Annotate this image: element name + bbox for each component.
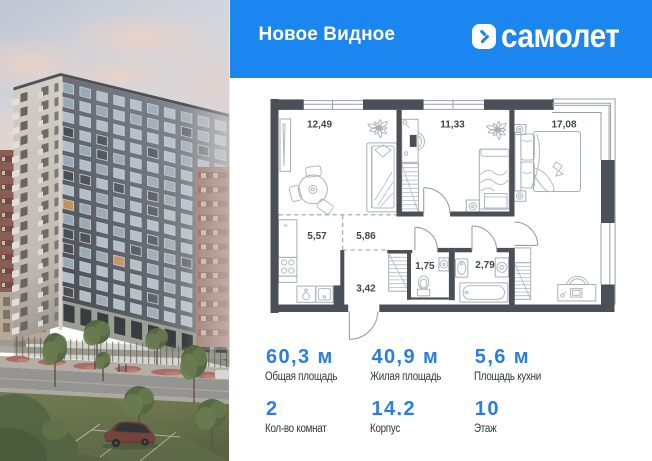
svg-text:12,49: 12,49 [307, 120, 332, 131]
svg-text:17,08: 17,08 [551, 120, 576, 131]
svg-text:5,57: 5,57 [307, 231, 327, 242]
svg-text:5,86: 5,86 [356, 231, 376, 242]
svg-text:3,42: 3,42 [356, 284, 376, 295]
svg-text:2,79: 2,79 [475, 260, 495, 271]
svg-text:✳: ✳ [283, 223, 288, 230]
svg-text:1,75: 1,75 [415, 261, 435, 272]
svg-text:11,33: 11,33 [440, 120, 465, 131]
